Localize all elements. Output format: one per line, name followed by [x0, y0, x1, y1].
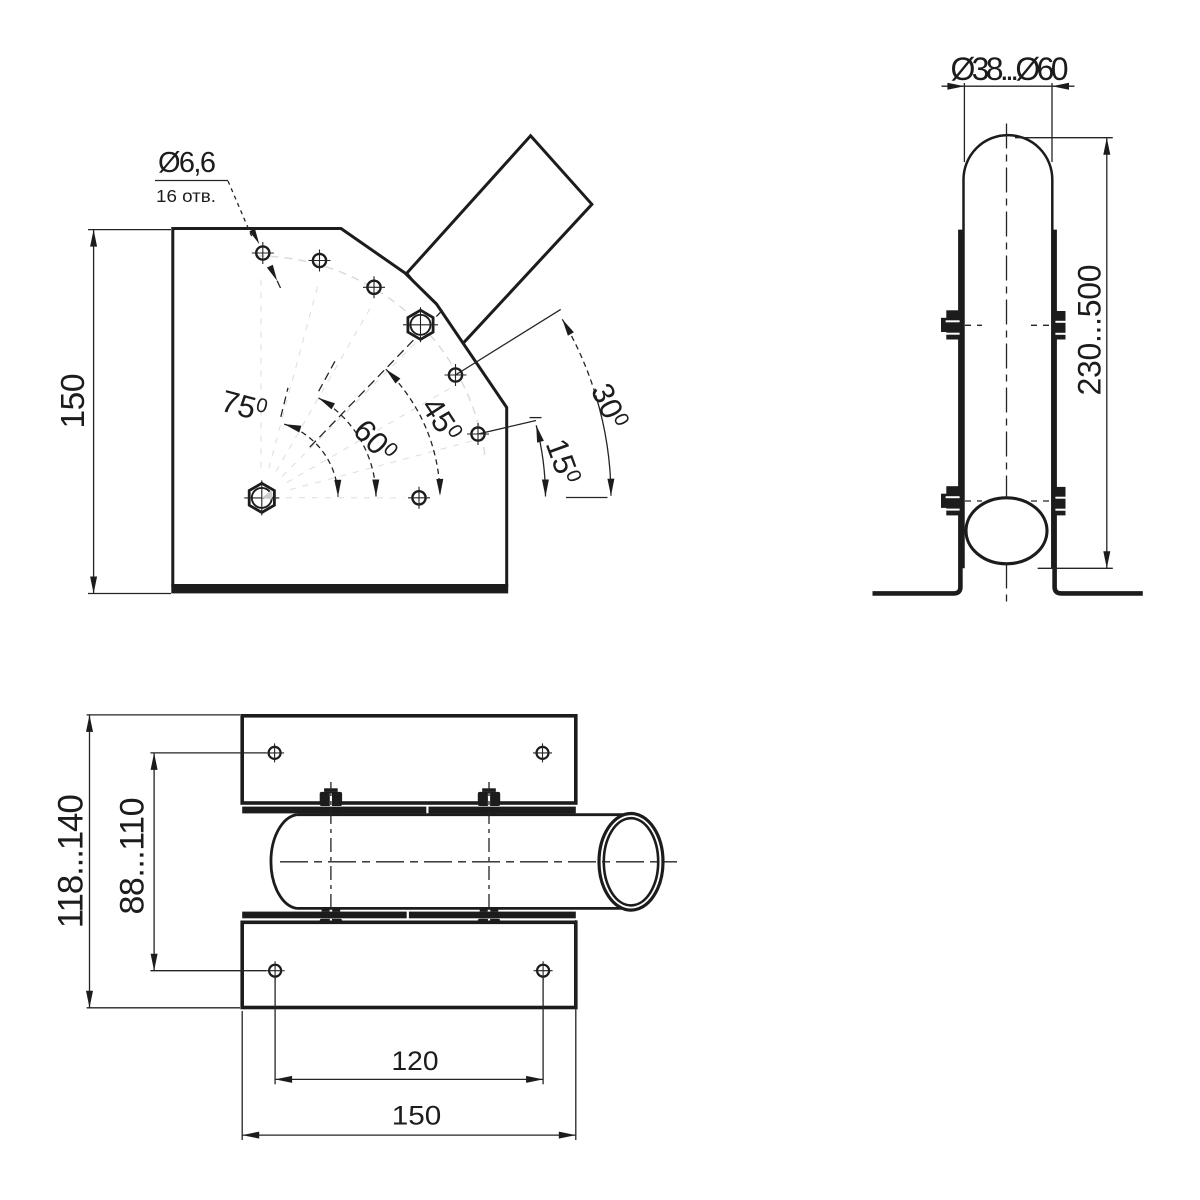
svg-text:118...140: 118...140	[51, 794, 90, 928]
svg-text:Ø6,6: Ø6,6	[158, 147, 216, 179]
svg-text:88...110: 88...110	[113, 798, 151, 915]
svg-text:150: 150	[55, 374, 92, 429]
svg-text:16 отв.: 16 отв.	[156, 186, 216, 206]
svg-text:230...500: 230...500	[1072, 265, 1108, 396]
svg-text:150: 150	[392, 1100, 442, 1130]
svg-text:Ø38...Ø60: Ø38...Ø60	[951, 51, 1069, 87]
svg-text:120: 120	[392, 1046, 439, 1076]
